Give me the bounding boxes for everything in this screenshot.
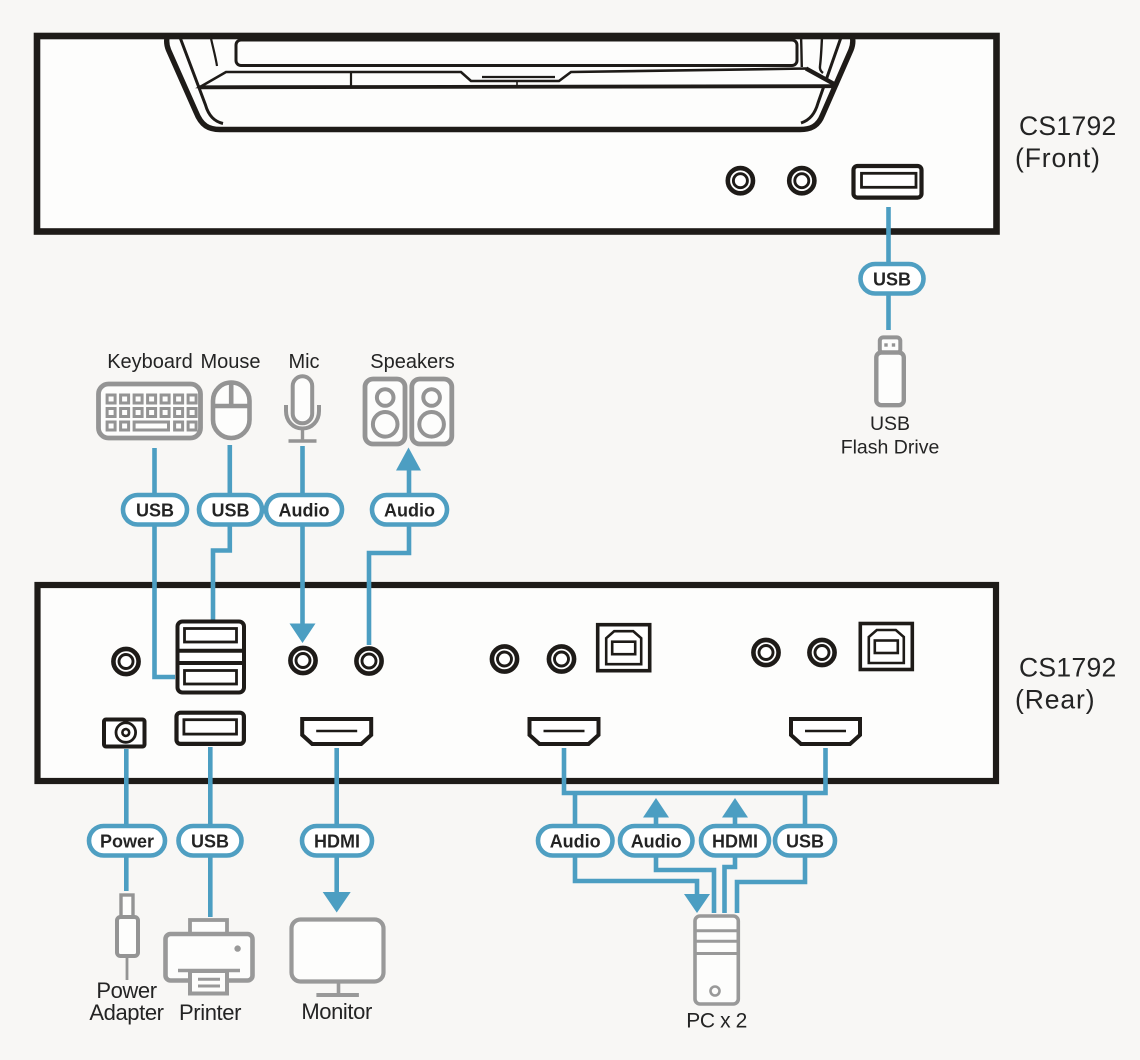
svg-text:Speakers: Speakers (370, 351, 455, 373)
svg-text:(Front): (Front) (1015, 143, 1101, 173)
svg-text:Monitor: Monitor (301, 999, 372, 1024)
svg-text:USB: USB (873, 270, 911, 290)
svg-text:Printer: Printer (179, 1000, 241, 1025)
svg-text:USB: USB (136, 501, 174, 521)
svg-text:USB: USB (211, 501, 249, 521)
svg-text:CS1792: CS1792 (1019, 111, 1117, 141)
svg-text:PC x 2: PC x 2 (686, 1010, 747, 1033)
svg-text:HDMI: HDMI (712, 832, 758, 852)
svg-text:Keyboard: Keyboard (107, 351, 193, 373)
svg-text:Audio: Audio (550, 832, 601, 852)
svg-text:HDMI: HDMI (314, 832, 360, 852)
svg-text:USB: USB (870, 413, 910, 435)
svg-text:Audio: Audio (631, 832, 682, 852)
svg-text:(Rear): (Rear) (1015, 685, 1096, 715)
svg-text:USB: USB (191, 832, 229, 852)
svg-text:Audio: Audio (279, 501, 330, 521)
svg-text:Adapter: Adapter (89, 1000, 163, 1025)
svg-text:Power: Power (100, 832, 154, 852)
svg-text:USB: USB (786, 832, 824, 852)
svg-text:Flash Drive: Flash Drive (841, 437, 940, 459)
svg-text:Audio: Audio (384, 501, 435, 521)
svg-text:CS1792: CS1792 (1019, 653, 1117, 683)
svg-text:Mic: Mic (288, 351, 319, 373)
svg-text:Mouse: Mouse (200, 351, 260, 373)
